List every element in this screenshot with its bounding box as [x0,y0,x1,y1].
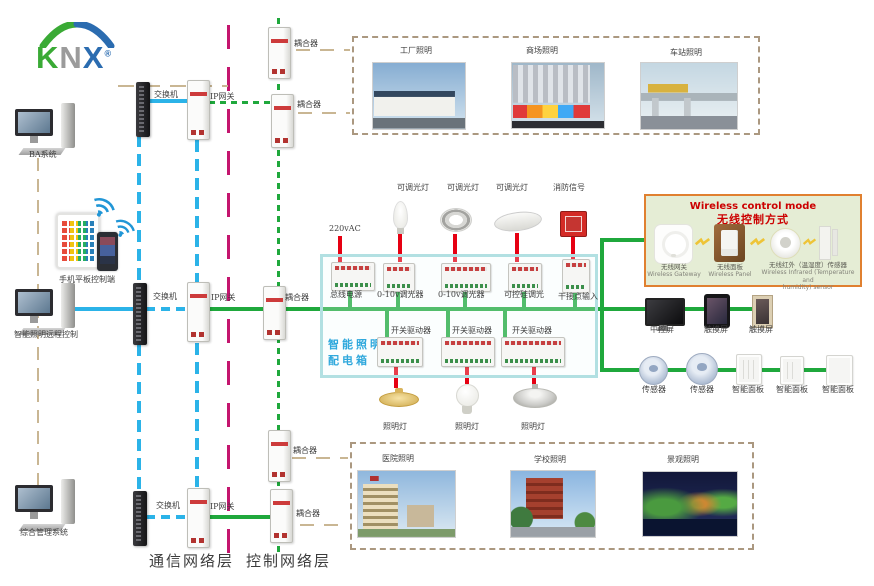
knx-seg-sensor3 [760,368,780,372]
ip-gateway-mid [187,282,210,342]
knx-registered-mark: ® [104,49,112,59]
diagram-canvas: KNX® BA系统 手机平板控制端 智能照明远程控制 综合管理系统 交换机 IP… [0,0,874,586]
coupler-5-label: 耦合器 [296,510,320,519]
fire-alarm-icon [560,211,587,237]
hospital-photo [357,470,456,538]
phone-device [97,232,118,271]
dry-contact-label: 干接点输入 [558,293,598,302]
wireless-gateway-icon [654,224,693,264]
wireless-panel-label-cn: 无线面板 [702,263,758,271]
wireless-panel-label-en: Wireless Panel [702,271,758,279]
app-label-school: 学校照明 [534,456,566,465]
landscape-photo [642,471,738,537]
door-window-sensor-icon [819,226,838,258]
touch-screen-label-2: 触摸屏 [749,326,773,335]
switch-label-bot: 交换机 [156,502,180,511]
knx-link-bot [208,515,271,519]
switch-label-top: 交换机 [154,91,178,100]
dimmable-lamp-label-2: 可调光灯 [447,184,479,193]
wireless-panel-caption: 无线面板 Wireless Panel [702,263,758,279]
factory-photo [372,62,466,130]
dimmable-lamp-label-1: 可调光灯 [397,184,429,193]
dry-contact-module [562,259,590,293]
touch-screen-label-1: 触摸屏 [704,326,728,335]
app-label-factory: 工厂照明 [400,47,432,56]
lamp-label-3: 照明灯 [521,423,545,432]
smart-panel-label-2: 智能面板 [776,386,808,395]
tower-icon [61,479,75,524]
switch-actuator-module-1 [377,337,423,367]
knx-seg-screen2 [730,307,752,311]
wireless-signal-icon [750,236,765,248]
wireless-sensor-label-cn: 无线红外（温湿度）传感器 [758,261,858,269]
touch-screen-icon-2 [752,295,773,328]
smart-panel-label-3: 智能面板 [822,386,854,395]
tower-icon [61,103,75,148]
touch-screen-icon-1 [704,294,730,328]
lamp-label-1: 照明灯 [383,423,407,432]
app-label-station: 车站照明 [670,49,702,58]
knx-letter-x: X [83,40,105,75]
app-link-coupler1 [296,49,350,51]
central-screen-label: 中控屏 [650,326,674,335]
knx-branch-wireless [600,238,645,242]
switch-actuator-module-2 [441,337,495,367]
coupler-2-label: 耦合器 [297,101,321,110]
ip-gateway-bot [187,488,210,548]
wireless-control-box: Wireless control mode 无线控制方式 无线网关 Wirele… [644,194,862,287]
fire-signal-label: 消防信号 [553,184,585,193]
scr-dimmer-label: 可控硅调光 [504,291,544,300]
knx-logo: KNX® [36,22,126,74]
tablet-device [56,213,100,269]
smart-panel-icon-3 [826,355,853,386]
app-link-top-row [118,85,228,87]
disc-lamp-icon [379,392,419,407]
coupler-3-label: 耦合器 [285,294,309,303]
coupler-2 [271,94,294,148]
wireless-sensor-caption: 无线红外（温湿度）传感器 Wireless Infrared (Temperat… [758,261,858,292]
monitor-icon [15,485,53,512]
bus-power-module [331,262,375,291]
coupler-1-label: 耦合器 [294,40,318,49]
network-switch-top [136,82,150,137]
smart-panel-icon-2 [780,356,804,385]
app-link-coupler5 [300,524,348,526]
knx-branch-sensors [600,368,639,372]
control-layer-label: 控制网络层 [246,550,331,571]
knx-seg-sensor1 [666,368,686,372]
smart-panel-label-1: 智能面板 [732,386,764,395]
management-system-label: 综合管理系统 [20,529,68,538]
dimmer-module-2 [441,263,491,292]
app-label-hospital: 医院照明 [382,455,414,464]
ethernet-link-bot [146,515,187,519]
wireless-round-sensor-icon [770,228,801,259]
school-photo [510,470,596,538]
downlight-icon [440,208,472,232]
central-screen-icon [645,298,685,326]
dimmer-module-1 [383,263,415,292]
wireless-gateway-label-cn: 无线网关 [644,263,704,271]
wireless-signal-icon [803,237,816,247]
coupler-4-label: 耦合器 [293,447,317,456]
network-switch-mid [133,283,147,345]
distribution-box-title-line1: 智能照明 [328,336,384,352]
gateway-link-line-top [195,140,199,284]
monitor-icon [15,109,53,136]
monitor-icon [15,289,53,316]
wireless-sensor-label-en1: Wireless Infrared (Temperature and [758,269,858,284]
dimmer-label-1: 0-10v调光器 [377,291,424,300]
station-photo [640,62,738,130]
wireless-signal-icon [695,236,710,248]
remote-control-label: 智能照明远程控制 [14,331,78,340]
switch-actuator-label-3: 开关驱动器 [512,327,552,336]
coupler-1 [268,27,291,79]
distribution-box-title-line2: 配电箱 [328,352,370,368]
lamp-label-2: 照明灯 [455,423,479,432]
switch-actuator-label-1: 开关驱动器 [391,327,431,336]
ba-system-label: BA系统 [29,151,57,160]
app-label-mall: 商场照明 [526,47,558,56]
knx-trunk-right [600,238,604,372]
knx-seg-sensor2 [716,368,736,372]
mains-power-label: 220vAC [329,225,361,234]
bulb-lamp-icon [456,384,479,407]
highbay-lamp-icon [513,388,557,408]
app-link-coupler2 [298,112,350,114]
communication-layer-label: 通信网络层 [149,550,234,571]
smart-panel-icon-1 [736,354,762,385]
knx-letter-n: N [59,40,82,75]
wireless-sensor-label-en2: humidity) sensor [758,284,858,292]
sensor-label-1: 传感器 [642,386,666,395]
coupler-5 [270,489,293,543]
dimmer-label-2: 0-10v调光器 [438,291,485,300]
app-label-landscape: 景观照明 [667,456,699,465]
wireless-gateway-caption: 无线网关 Wireless Gateway [644,263,704,279]
tower-icon [61,283,75,328]
dimmable-lamp-label-3: 可调光灯 [496,184,528,193]
remote-control-computer [15,283,79,337]
ip-gateway-label-bot: IP网关 [210,503,235,512]
wireless-gateway-label-en: Wireless Gateway [644,271,704,279]
ip-gateway-label-top: IP网关 [210,93,235,102]
ip-gateway-label-mid: IP网关 [211,294,236,303]
scr-dimmer-module [508,263,542,292]
sensor-dome-icon-1 [639,356,668,385]
mall-photo [511,62,605,129]
panel-light-icon [493,209,543,234]
ip-gateway-top [187,80,210,140]
bus-power-label: 总线电源 [330,291,362,300]
network-switch-bot [133,491,147,546]
ba-system-computer [15,103,79,157]
coupler-4 [268,430,291,482]
candle-bulb-icon [393,201,408,229]
ethernet-link-mid [146,307,187,311]
pc-ethernet-link [70,307,134,311]
app-link-coupler4 [292,457,348,459]
switch-actuator-module-3 [501,337,565,367]
switch-label-mid: 交换机 [153,293,177,302]
management-system-computer [15,479,79,533]
gateway-link-line-bottom [195,343,199,487]
wireless-panel-icon [714,224,745,262]
knx-letter-k: K [36,40,59,75]
switch-actuator-label-2: 开关驱动器 [452,327,492,336]
coupler-3 [263,286,286,340]
sensor-label-2: 传感器 [690,386,714,395]
sensor-dome-icon-2 [686,353,718,385]
knx-seg-sensor4 [802,368,826,372]
